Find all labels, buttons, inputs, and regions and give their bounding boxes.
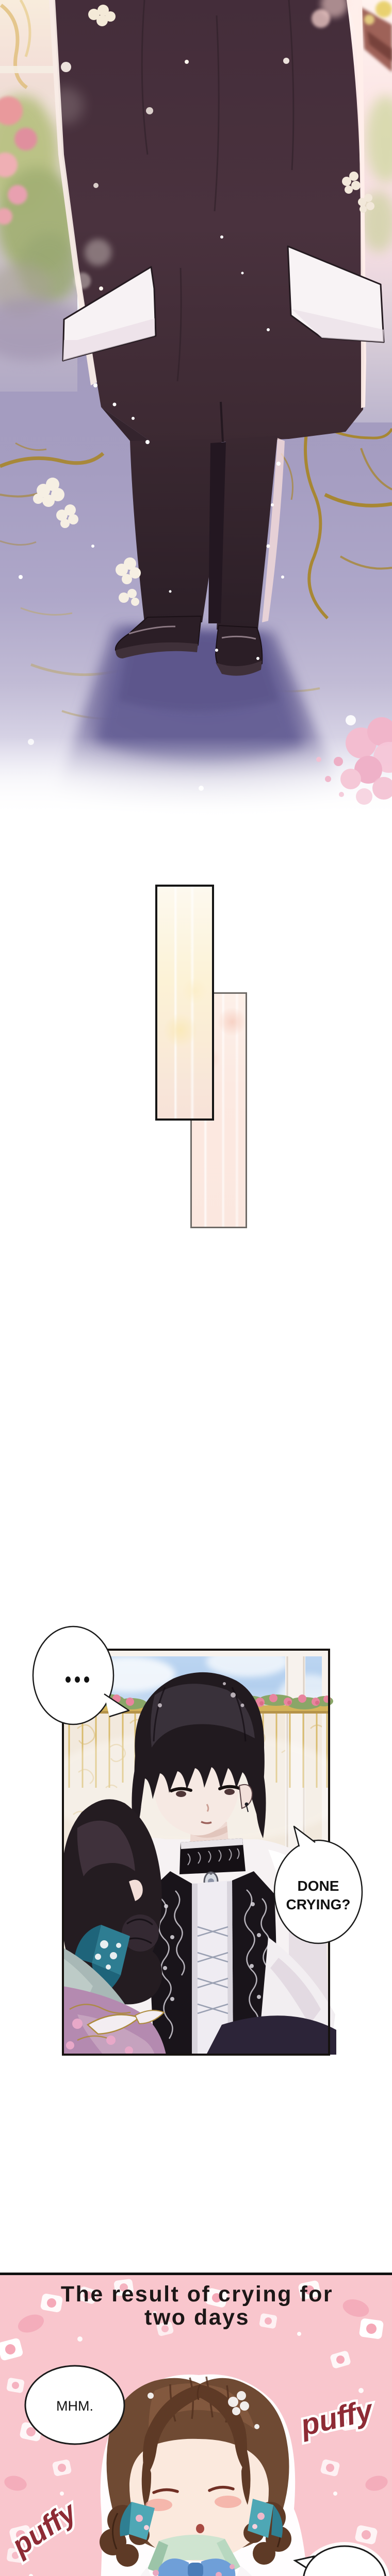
svg-text:MHM.: MHM. [56,2398,93,2414]
svg-text:two days: two days [144,2305,250,2330]
svg-text:The result of crying for: The result of crying for [61,2282,333,2307]
svg-text:DONE: DONE [298,1878,339,1894]
svg-text:CRYING?: CRYING? [286,1896,351,1912]
